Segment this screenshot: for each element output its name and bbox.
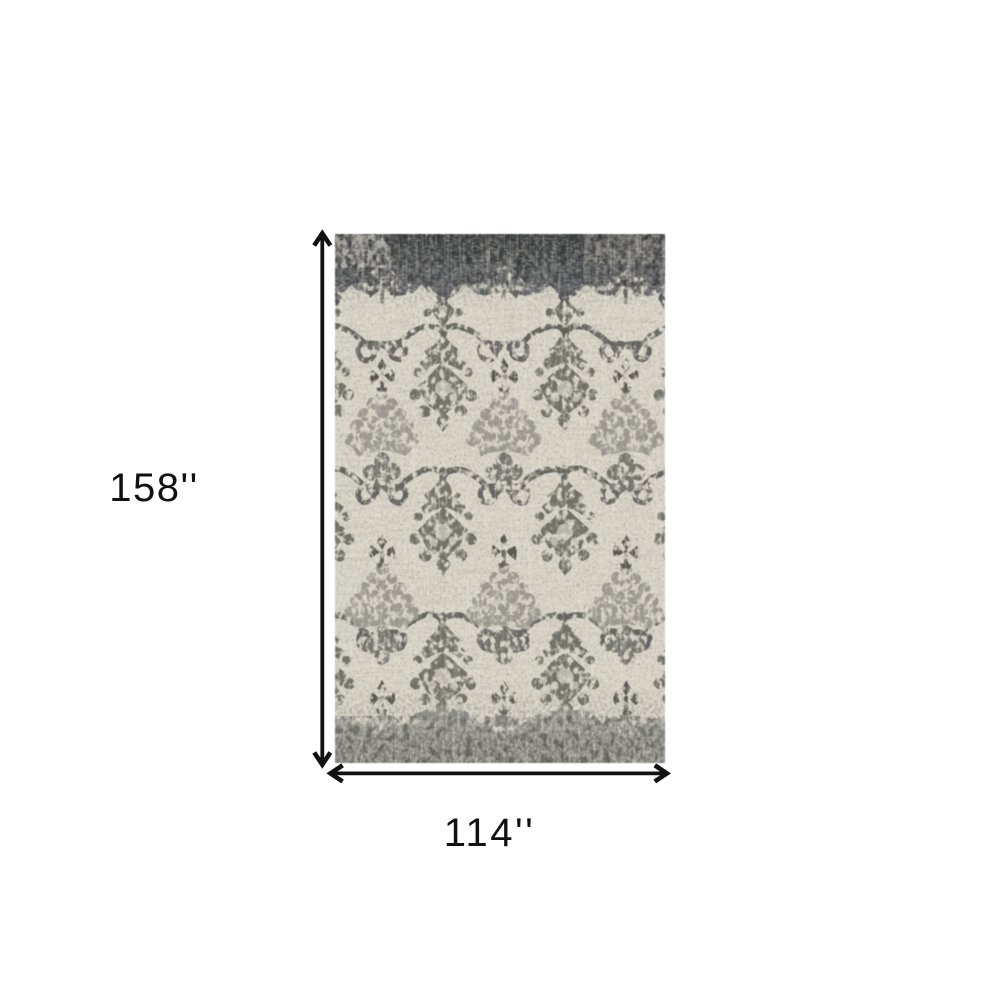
- svg-text:114'': 114'': [444, 811, 536, 855]
- svg-text:158'': 158'': [109, 466, 199, 510]
